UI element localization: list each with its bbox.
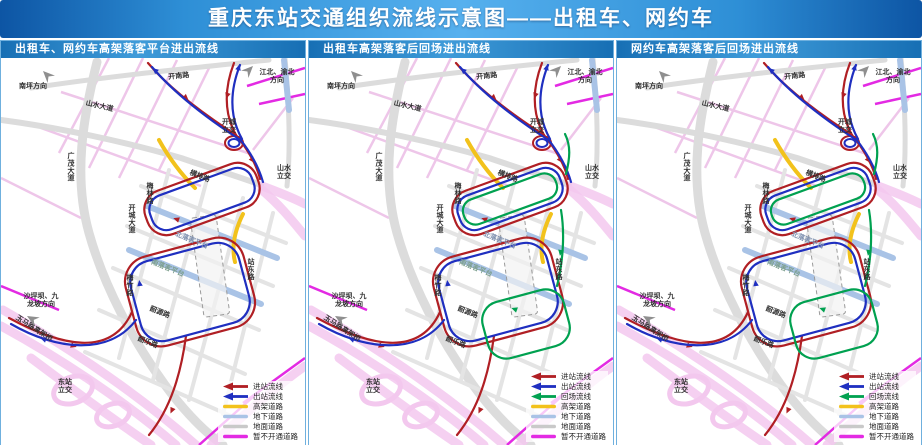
map-label-kaicheng-interchange: 开城立交 xyxy=(222,117,237,134)
panel-platform-inout: 出租车、网约车高架落客平台进出流线 南坪方向开南路江北、渝北方向山水大道开城立交… xyxy=(0,40,306,445)
underground-swatch xyxy=(528,412,558,421)
map-label-nanping-direction: 南坪方向 xyxy=(635,81,663,90)
map-label-shapingba-jiulongpo-direction: 沙坪坝、九龙坡方向 xyxy=(24,291,59,308)
base-road xyxy=(1,178,81,218)
nanping-arrow-icon xyxy=(39,67,55,83)
legend-item-elevated: 高架道路 xyxy=(528,402,606,411)
base-road xyxy=(617,178,697,218)
closed-swatch xyxy=(528,432,558,441)
base-road xyxy=(309,178,389,218)
legend-item-inbound: 进站流线 xyxy=(836,372,914,381)
map-label-south-dropoff-platform: 南落客平台 xyxy=(458,257,494,278)
map-label-zhandong-road: 站东路 xyxy=(556,257,564,281)
nanping-arrow-icon xyxy=(655,67,671,83)
map-label-meizhu-road: 梅竹路 xyxy=(434,273,443,297)
map-taxi-return: 南坪方向开南路江北、渝北方向山水大道开城立交广茂大道横排路梅林路山水立交开城大道… xyxy=(309,58,613,445)
panels-row: 出租车、网约车高架落客平台进出流线 南坪方向开南路江北、渝北方向山水大道开城立交… xyxy=(0,40,922,445)
inbound-flow-arrow-icon xyxy=(784,407,792,415)
legend-item-outbound: 出站流线 xyxy=(836,382,914,391)
closed-swatch xyxy=(836,432,866,441)
legend-label: 暂不开通道路 xyxy=(869,431,914,442)
map-label-meizhu-road: 梅竹路 xyxy=(126,273,135,297)
elevated-swatch xyxy=(220,402,250,411)
map-label-meizhu-road: 梅竹路 xyxy=(742,273,751,297)
legend-item-ground: 地面道路 xyxy=(220,422,298,431)
map-label-dongzhan-interchange: 东站立交 xyxy=(674,377,689,394)
legend-item-return: 回场流线 xyxy=(528,392,606,401)
legend-item-elevated: 高架道路 xyxy=(836,402,914,411)
base-street xyxy=(99,310,245,374)
legend-item-outbound: 出站流线 xyxy=(220,392,298,401)
legend-item-inbound: 进站流线 xyxy=(528,372,606,381)
map-label-south-dropoff-platform: 南落客平台 xyxy=(150,257,186,278)
legend-item-ground: 地面道路 xyxy=(836,422,914,431)
map-label-kaicheng-interchange: 开城立交 xyxy=(838,117,853,134)
map-label-guangmao-avenue: 广茂大道 xyxy=(68,151,75,182)
outbound-flow-loop xyxy=(229,139,240,147)
panel-taxi-return: 出租车高架落客后回场进出流线 南坪方向开南路江北、渝北方向山水大道开城立交广茂大… xyxy=(308,40,614,445)
legend: 进站流线出站流线回场流线高架道路地下道路地面道路暂不开通道路 xyxy=(834,371,916,442)
outbound-arrow-icon xyxy=(836,382,866,391)
panel-header-netcar-return: 网约车高架落客后回场进出流线 xyxy=(617,41,921,58)
map-netcar-return: 南坪方向开南路江北、渝北方向山水大道开城立交广茂大道横排路梅林路山水立交开城大道… xyxy=(617,58,921,445)
map-label-shaoyuan-road: 韶源路 xyxy=(149,304,173,321)
elevated-swatch xyxy=(528,402,558,411)
panel-netcar-return: 网约车高架落客后回场进出流线 南坪方向开南路江北、渝北方向山水大道开城立交广茂大… xyxy=(616,40,922,445)
map-label-meilin-road: 梅林路 xyxy=(763,181,771,205)
map-label-zhandong-road: 站东路 xyxy=(248,257,256,281)
legend-label: 暂不开通道路 xyxy=(253,431,298,442)
underground-road xyxy=(745,250,877,304)
legend-item-underground: 地下道路 xyxy=(220,412,298,421)
map-label-dongzhan-interchange: 东站立交 xyxy=(58,377,73,394)
map-label-zhandong-road: 站东路 xyxy=(864,257,872,281)
underground-swatch xyxy=(220,412,250,421)
legend-item-underground: 地下道路 xyxy=(836,412,914,421)
legend-label: 暂不开通道路 xyxy=(561,431,606,442)
closed-road xyxy=(259,94,305,104)
base-street xyxy=(715,310,861,374)
map-label-dongzhan-interchange: 东站立交 xyxy=(366,377,381,394)
panel-header-platform-inout: 出租车、网约车高架落客平台进出流线 xyxy=(1,41,305,58)
ground-swatch xyxy=(220,422,250,431)
underground-road xyxy=(129,250,261,304)
map-label-kaicheng-avenue: 开城大道 xyxy=(745,204,752,234)
inbound-flow-arrow-icon xyxy=(168,407,176,415)
map-label-shaoyuan-road: 韶源路 xyxy=(457,304,481,321)
inbound-arrow-icon xyxy=(528,372,558,381)
closed-swatch xyxy=(220,432,250,441)
return-arrow-icon xyxy=(528,392,558,401)
nanping-arrow-icon xyxy=(347,67,363,83)
outbound-flow-loop xyxy=(845,139,856,147)
map-label-guangmao-avenue: 广茂大道 xyxy=(376,151,383,182)
map-label-shanshui-interchange: 山水立交 xyxy=(277,163,292,180)
legend-item-elevated: 高架道路 xyxy=(220,402,298,411)
map-label-shaoyuan-road: 韶源路 xyxy=(765,304,789,321)
map-label-meilin-road: 梅林路 xyxy=(455,181,463,205)
ground-swatch xyxy=(528,422,558,431)
map-label-guangmao-avenue: 广茂大道 xyxy=(684,151,691,182)
base-street xyxy=(407,310,553,374)
elevated-swatch xyxy=(836,402,866,411)
map-label-kaicheng-avenue: 开城大道 xyxy=(129,204,136,234)
inbound-arrow-icon xyxy=(220,382,250,391)
ground-swatch xyxy=(836,422,866,431)
page-title: 重庆东站交通组织流线示意图——出租车、网约车 xyxy=(0,0,922,38)
legend: 进站流线出站流线回场流线高架道路地下道路地面道路暂不开通道路 xyxy=(526,371,608,442)
legend-item-inbound: 进站流线 xyxy=(220,382,298,391)
return-arrow-icon xyxy=(836,392,866,401)
legend: 进站流线出站流线高架道路地下道路地面道路暂不开通道路 xyxy=(218,381,300,442)
legend-item-ground: 地面道路 xyxy=(528,422,606,431)
map-label-kaicheng-avenue: 开城大道 xyxy=(437,204,444,234)
underground-road xyxy=(437,250,569,304)
legend-item-outbound: 出站流线 xyxy=(528,382,606,391)
map-label-south-dropoff-platform: 南落客平台 xyxy=(766,257,802,278)
map-label-shapingba-jiulongpo-direction: 沙坪坝、九龙坡方向 xyxy=(640,291,675,308)
underground-swatch xyxy=(836,412,866,421)
outbound-arrow-icon xyxy=(528,382,558,391)
map-platform-inout: 南坪方向开南路江北、渝北方向山水大道开城立交广茂大道横排路梅林路山水立交开城大道… xyxy=(1,58,305,445)
legend-item-underground: 地下道路 xyxy=(528,412,606,421)
outbound-arrow-icon xyxy=(220,392,250,401)
map-label-nanping-direction: 南坪方向 xyxy=(327,81,355,90)
map-label-nanping-direction: 南坪方向 xyxy=(19,81,47,90)
slide: 重庆东站交通组织流线示意图——出租车、网约车 出租车、网约车高架落客平台进出流线… xyxy=(0,0,922,445)
legend-item-return: 回场流线 xyxy=(836,392,914,401)
panel-header-taxi-return: 出租车高架落客后回场进出流线 xyxy=(309,41,613,58)
map-label-meilin-road: 梅林路 xyxy=(147,181,155,205)
legend-item-closed: 暂不开通道路 xyxy=(528,432,606,441)
map-label-shanshui-interchange: 山水立交 xyxy=(893,163,908,180)
inbound-flow-arrow-icon xyxy=(476,407,484,415)
map-label-kaicheng-interchange: 开城立交 xyxy=(530,117,545,134)
map-label-shapingba-jiulongpo-direction: 沙坪坝、九龙坡方向 xyxy=(332,291,367,308)
legend-item-closed: 暂不开通道路 xyxy=(220,432,298,441)
closed-road xyxy=(875,94,921,104)
map-label-shanshui-interchange: 山水立交 xyxy=(585,163,600,180)
legend-item-closed: 暂不开通道路 xyxy=(836,432,914,441)
closed-road xyxy=(567,94,613,104)
outbound-flow-loop xyxy=(537,139,548,147)
inbound-arrow-icon xyxy=(836,372,866,381)
